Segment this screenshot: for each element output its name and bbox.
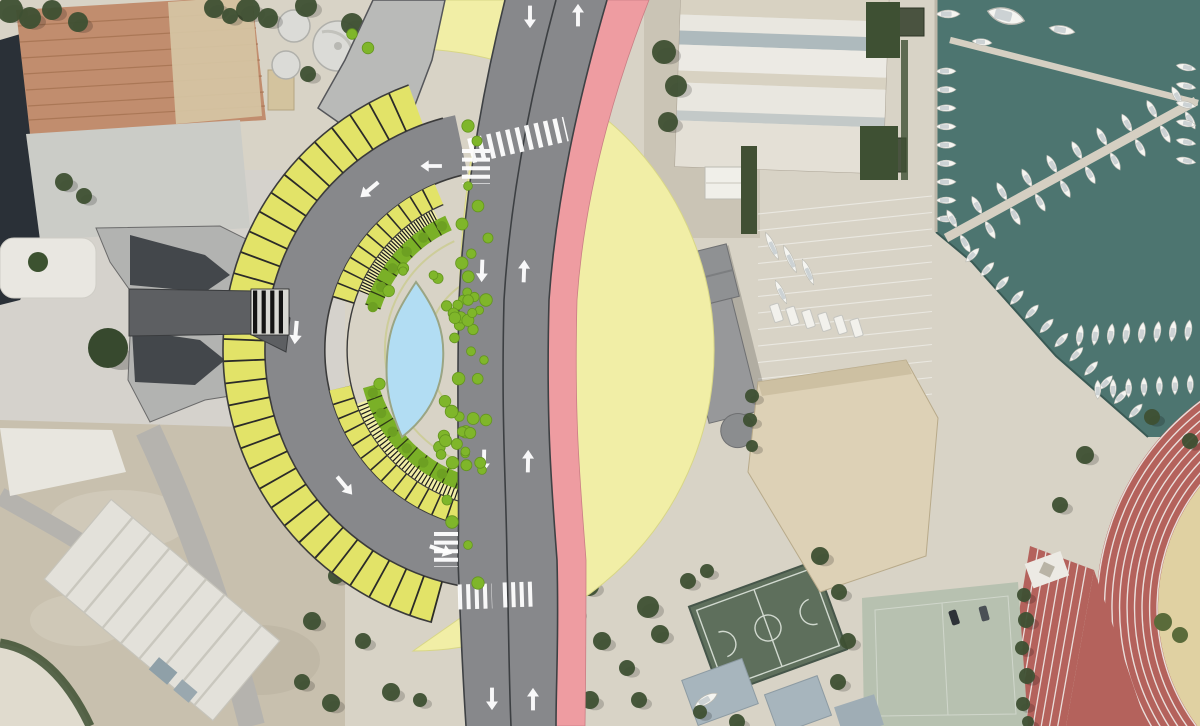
- warehouse-hedge: [860, 126, 898, 180]
- aerial-plan-map: [0, 0, 1200, 726]
- tall-hedge: [741, 146, 757, 234]
- striped-warehouse: [675, 0, 889, 174]
- traffic-island: [0, 238, 96, 298]
- map-canvas: [0, 0, 1200, 726]
- warehouse-hedge: [866, 2, 900, 58]
- promenade-hedge: [901, 40, 908, 180]
